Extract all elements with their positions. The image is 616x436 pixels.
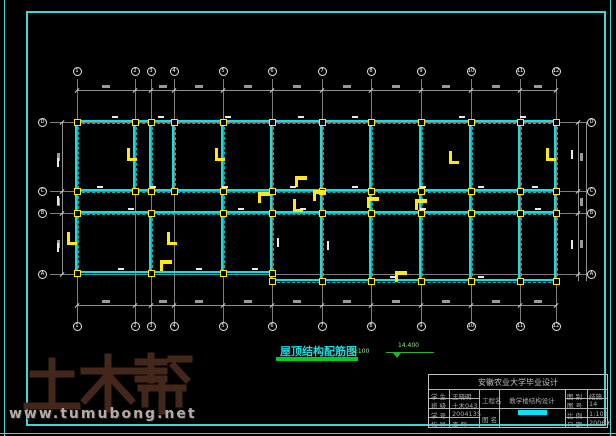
column-marker (269, 278, 276, 285)
section-flag-mark (293, 199, 296, 212)
column-marker (319, 119, 326, 126)
title-block-header: 安徽农业大学毕业设计 (429, 377, 607, 388)
column-marker (319, 278, 326, 285)
axis-bubble-left: B (38, 209, 47, 218)
axis-bubble-top: 11 (516, 67, 525, 76)
dimension-line (586, 122, 587, 281)
dim-text-mark (159, 300, 167, 303)
section-flag-mark (167, 232, 170, 245)
column-marker (171, 188, 178, 195)
axis-bubble-top: 10 (467, 67, 476, 76)
axis-bubble-bottom: 11 (516, 322, 525, 331)
axis-bubble-right: A (587, 270, 596, 279)
section-flag-mark (258, 192, 270, 196)
tb-project-name: 教学楼结构设计 (499, 395, 565, 405)
beam-vertical (320, 122, 324, 281)
section-flag-mark (395, 271, 407, 275)
axis-bubble-right: D (587, 118, 596, 127)
column-marker (468, 278, 475, 285)
column-marker (553, 119, 560, 126)
beam-label-mark (57, 243, 59, 252)
tb-label: 图 号 (567, 400, 582, 410)
column-marker (468, 188, 475, 195)
tb-value: 2006.6 (589, 419, 612, 427)
grid-line-vertical (151, 79, 152, 322)
axis-bubble-top: 8 (367, 67, 376, 76)
dimension-line (62, 122, 63, 274)
dim-text-mark (293, 85, 301, 88)
axis-bubble-left: D (38, 118, 47, 127)
beam-label-mark (252, 268, 258, 270)
column-marker (553, 278, 560, 285)
dim-text-mark (159, 85, 167, 88)
title-underline (276, 357, 358, 361)
dim-text-mark (580, 198, 583, 206)
beam-label-mark (150, 186, 156, 188)
dim-text-mark (343, 85, 351, 88)
beam-label-mark (300, 208, 306, 210)
column-marker (269, 270, 276, 277)
column-marker (269, 119, 276, 126)
axis-bubble-bottom: 8 (367, 322, 376, 331)
dim-text-mark (244, 300, 252, 303)
axis-bubble-bottom: 3 (147, 322, 156, 331)
axis-bubble-right: B (587, 209, 596, 218)
beam-label-mark (238, 208, 244, 210)
column-marker (148, 119, 155, 126)
axis-bubble-top: 4 (170, 67, 179, 76)
tb-value: 1:100 (589, 410, 608, 418)
axis-bubble-bottom: 2 (131, 322, 140, 331)
column-marker (74, 270, 81, 277)
column-marker (368, 278, 375, 285)
section-flag-mark (415, 199, 427, 203)
dim-text-mark (102, 300, 110, 303)
axis-bubble-bottom: 1 (73, 322, 82, 331)
column-marker (132, 119, 139, 126)
column-marker (368, 210, 375, 217)
dim-text-mark (293, 300, 301, 303)
axis-bubble-bottom: 7 (318, 322, 327, 331)
dim-text-mark (195, 300, 203, 303)
beam-label-mark (112, 116, 118, 118)
beam-label-mark (158, 116, 164, 118)
beam-label-mark (420, 186, 426, 188)
axis-bubble-top: 2 (131, 67, 140, 76)
beam-label-mark (478, 276, 484, 278)
dim-text-mark (195, 85, 203, 88)
beam-vertical (149, 122, 153, 191)
dim-text-mark (442, 300, 450, 303)
column-marker (220, 119, 227, 126)
column-marker (553, 210, 560, 217)
scale-label: 1:100 (352, 348, 369, 355)
cad-sheet: 112233445566778899101011111212DDCCBBAA 屋… (0, 0, 616, 436)
column-marker (269, 210, 276, 217)
beam-vertical (469, 122, 473, 281)
tb-value: 李 强 (452, 419, 467, 429)
column-marker (468, 119, 475, 126)
tb-label: 日 期 (567, 419, 582, 429)
tb-value: 2004135 (452, 410, 481, 418)
axis-bubble-top: 3 (147, 67, 156, 76)
section-flag-mark (367, 197, 379, 201)
axis-bubble-bottom: 5 (219, 322, 228, 331)
column-marker (74, 188, 81, 195)
dim-text-mark (343, 300, 351, 303)
section-flag-mark (127, 148, 130, 161)
dim-text-mark (442, 85, 450, 88)
section-flag-mark (67, 232, 70, 245)
dim-text-mark (244, 85, 252, 88)
dim-text-mark (492, 300, 500, 303)
column-marker (148, 188, 155, 195)
dim-text-mark (534, 300, 542, 303)
axis-bubble-top: 7 (318, 67, 327, 76)
tb-label: 班 级 (431, 400, 446, 410)
dim-text-mark (534, 85, 542, 88)
column-marker (171, 119, 178, 126)
beam-vertical (554, 122, 558, 281)
beam-label-mark (390, 276, 396, 278)
column-marker (553, 188, 560, 195)
column-marker (74, 210, 81, 217)
column-marker (368, 188, 375, 195)
beam-label-mark (535, 208, 541, 210)
beam-label-mark (97, 186, 103, 188)
dim-text-mark (392, 300, 400, 303)
column-marker (220, 270, 227, 277)
column-marker (220, 210, 227, 217)
grid-line-vertical (135, 79, 136, 322)
axis-bubble-bottom: 4 (170, 322, 179, 331)
axis-bubble-bottom: 10 (467, 322, 476, 331)
column-marker (418, 278, 425, 285)
dim-text-mark (580, 153, 583, 161)
column-marker (74, 119, 81, 126)
column-marker (148, 270, 155, 277)
column-marker (517, 188, 524, 195)
column-marker (148, 210, 155, 217)
dim-text-mark (392, 85, 400, 88)
section-flag-mark (449, 151, 452, 164)
dim-text-mark (492, 85, 500, 88)
beam-label-mark (128, 208, 134, 210)
beam-vertical (133, 122, 137, 191)
tb-rule (499, 408, 565, 409)
section-flag-mark (546, 148, 549, 161)
axis-bubble-left: C (38, 187, 47, 196)
axis-bubble-top: 6 (268, 67, 277, 76)
beam-label-mark (352, 186, 358, 188)
tb-value: 土木043 (452, 400, 477, 410)
beam-label-mark (327, 241, 329, 250)
elevation-marker-icon (393, 353, 401, 358)
tb-sheet-name-highlight (518, 410, 547, 415)
tb-value: 14 (589, 400, 597, 408)
dim-text-mark (102, 85, 110, 88)
column-marker (418, 188, 425, 195)
beam-label-mark (118, 268, 124, 270)
column-marker (132, 188, 139, 195)
beam-label-mark (520, 116, 526, 118)
beam-vertical (270, 122, 274, 281)
beam-label-mark (571, 240, 573, 249)
beam-vertical (221, 122, 225, 273)
tb-rule (429, 389, 607, 390)
beam-label-mark (196, 268, 202, 270)
beam-horizontal (272, 279, 556, 283)
beam-label-mark (225, 116, 231, 118)
dimension-line (578, 122, 579, 281)
axis-bubble-top: 1 (73, 67, 82, 76)
tb-label: 指 导 (431, 419, 446, 429)
column-marker (517, 119, 524, 126)
column-marker (517, 210, 524, 217)
beam-vertical (75, 122, 79, 273)
tb-sheet-label: 图 名 (482, 414, 497, 424)
section-flag-mark (295, 176, 307, 180)
beam-vertical (149, 213, 153, 273)
beam-label-mark (532, 186, 538, 188)
column-marker (517, 278, 524, 285)
column-marker (418, 119, 425, 126)
watermark-url: www.tumubong.net (9, 406, 197, 422)
column-marker (468, 210, 475, 217)
dim-text-mark (580, 240, 583, 248)
column-marker (220, 188, 227, 195)
section-flag-mark (215, 148, 218, 161)
beam-label-mark (478, 186, 484, 188)
column-marker (368, 119, 375, 126)
beam-label-mark (420, 208, 426, 210)
axis-bubble-top: 12 (552, 67, 561, 76)
axis-bubble-left: A (38, 270, 47, 279)
section-flag-mark (313, 190, 325, 194)
beam-label-mark (57, 158, 59, 167)
section-flag-mark (160, 260, 172, 264)
beam-label-mark (298, 116, 304, 118)
axis-bubble-bottom: 6 (268, 322, 277, 331)
column-marker (418, 210, 425, 217)
axis-bubble-bottom: 12 (552, 322, 561, 331)
beam-horizontal (77, 271, 272, 275)
beam-label-mark (290, 186, 296, 188)
beam-label-mark (57, 196, 59, 205)
title-block: 安徽农业大学毕业设计 学 生 王晓明 班 级 土木043 学 号 2004135… (428, 374, 608, 428)
axis-bubble-top: 9 (417, 67, 426, 76)
grid-line-vertical (174, 79, 175, 322)
beam-label-mark (277, 238, 279, 247)
beam-label-mark (571, 150, 573, 159)
axis-bubble-top: 5 (219, 67, 228, 76)
axis-bubble-right: C (587, 187, 596, 196)
axis-bubble-bottom: 9 (417, 322, 426, 331)
elevation-value: 14.400 (398, 342, 419, 349)
beam-label-mark (459, 116, 465, 118)
beam-label-mark (352, 116, 358, 118)
beam-label-mark (222, 186, 228, 188)
column-marker (319, 210, 326, 217)
beam-vertical (172, 122, 176, 191)
beam-vertical (518, 122, 522, 281)
